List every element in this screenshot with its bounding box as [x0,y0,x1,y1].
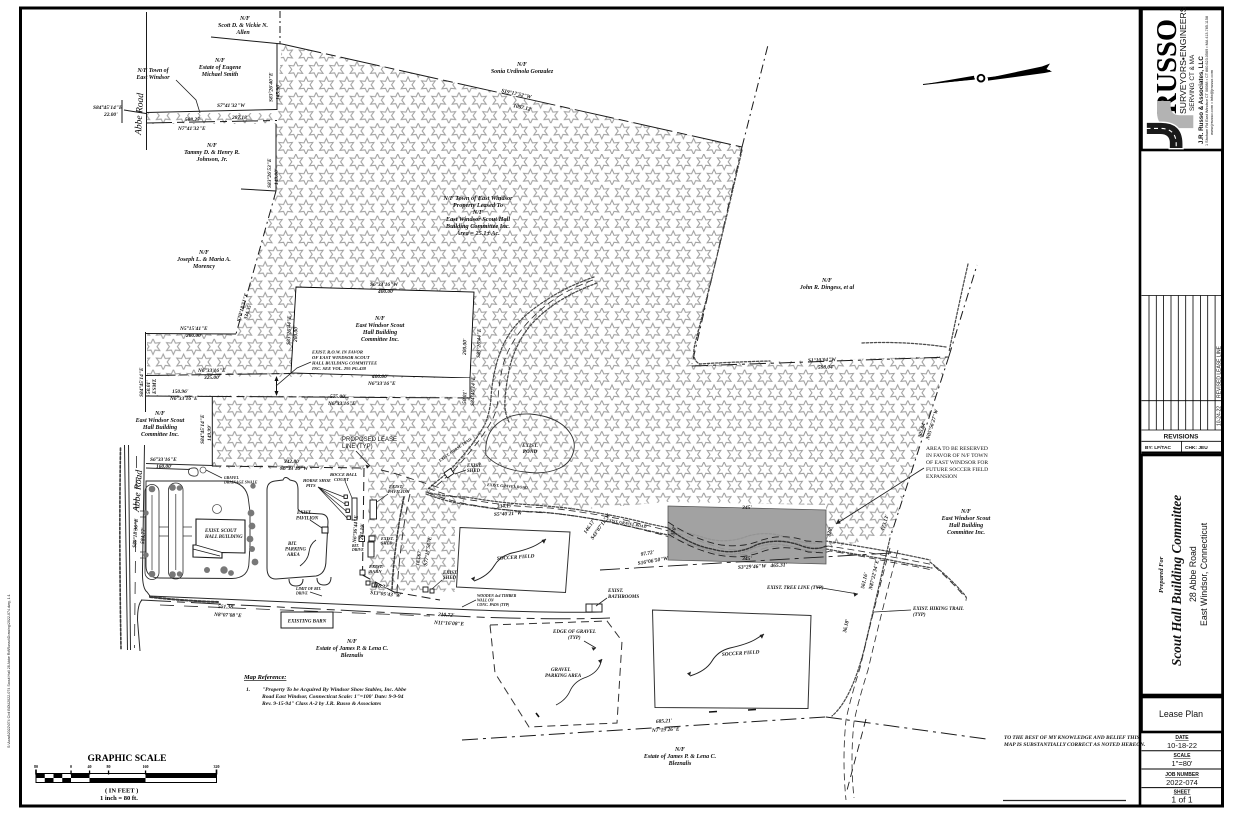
svg-text:PITS: PITS [306,483,316,488]
svg-text:N5°15'41"E: N5°15'41"E [179,325,208,332]
svg-text:S83°26'53"E: S83°26'53"E [266,158,273,188]
svg-text:Hall Building: Hall Building [362,330,397,336]
svg-text:REVISIONS: REVISIONS [1164,434,1200,441]
svg-text:575.00': 575.00' [330,394,347,400]
svg-text:Hall Building: Hall Building [142,425,177,431]
svg-text:DRAINAGE SWALE: DRAINAGE SWALE [223,481,258,485]
svg-text:East Windsor, Connecticut: East Windsor, Connecticut [1199,522,1209,626]
svg-text:Michael Smith: Michael Smith [201,72,239,78]
svg-text:145.96': 145.96' [276,83,282,100]
svg-text:1.: 1. [246,687,250,693]
svg-text:400.00': 400.00' [371,374,389,380]
svg-text:Lease Plan: Lease Plan [1159,709,1203,719]
svg-text:S6°33'16"W: S6°33'16"W [280,465,309,472]
svg-text:SURVEYORS•ENGINEERS: SURVEYORS•ENGINEERS [1178,6,1188,114]
svg-text:551.38': 551.38' [218,604,235,611]
svg-text:FUTURE SOCCER FIELD: FUTURE SOCCER FIELD [926,467,988,473]
svg-text:COURT: COURT [334,477,349,482]
svg-text:EXIST. R.O.W. IN FAVOR: EXIST. R.O.W. IN FAVOR [311,350,363,355]
svg-text:LINE (TYP): LINE (TYP) [342,444,373,450]
svg-text:10-24-22: 10-24-22 [1217,406,1223,426]
svg-text:EXIST. TREE LINE (TYP): EXIST. TREE LINE (TYP) [766,586,824,591]
svg-text:287.18': 287.18' [231,115,249,121]
svg-text:Scott D. & Vickie N.: Scott D. & Vickie N. [218,23,268,29]
svg-text:www.jrrusso.com • info@jrrusso: www.jrrusso.com • info@jrrusso.com [1209,69,1214,135]
svg-text:EXISTING BARN: EXISTING BARN [287,620,327,625]
svg-text:Rev. 9-15-94" Class A-2 by J.R: Rev. 9-15-94" Class A-2 by J.R. Russo & … [261,701,381,707]
svg-text:210.72': 210.72' [437,612,455,619]
svg-text:AREA: AREA [286,553,300,558]
svg-text:N6°33'16"E: N6°33'16"E [169,395,198,402]
svg-text:Sonia Urdinola Gonzalez: Sonia Urdinola Gonzalez [491,69,554,75]
svg-text:N/F: N/F [374,316,385,322]
svg-text:2022-074: 2022-074 [1166,778,1198,787]
svg-text:Committee Inc.: Committee Inc. [141,432,179,438]
svg-text:BY: LF/TAC: BY: LF/TAC [1145,445,1171,451]
svg-text:10-18-22: 10-18-22 [1167,741,1197,750]
svg-text:160: 160 [143,764,149,769]
svg-text:22.00': 22.00' [103,112,118,118]
svg-text:Hall Building: Hall Building [948,523,983,529]
svg-text:0: 0 [70,764,72,769]
svg-text:East Windsor Scout Hall: East Windsor Scout Hall [445,216,510,223]
svg-text:Committee Inc.: Committee Inc. [947,530,985,536]
svg-text:EDGE OF GRAVEL: EDGE OF GRAVEL [552,630,596,635]
svg-text:OF EAST WINDSOR SCOUT: OF EAST WINDSOR SCOUT [312,355,370,360]
svg-text:N/F: N/F [821,278,832,284]
svg-text:Road East Windsor, Connecticut: Road East Windsor, Connecticut Scale: 1"… [261,694,404,700]
svg-text:INC. SEE VOL. 295 PG.438: INC. SEE VOL. 295 PG.438 [311,366,367,371]
svg-text:200.00': 200.00' [185,333,203,339]
svg-text:Map Reference:: Map Reference: [243,674,286,681]
svg-text:EXIST. HIKING TRAIL: EXIST. HIKING TRAIL [912,607,964,612]
svg-text:598.04': 598.04' [818,364,835,371]
svg-text:320: 320 [214,764,220,769]
svg-text:(TYP): (TYP) [913,613,926,618]
svg-text:Prepared For: Prepared For [1158,556,1165,593]
svg-text:Estate of James P. & Lena C.: Estate of James P. & Lena C. [643,754,717,760]
svg-text:S84°45'14"E: S84°45'14"E [199,414,206,444]
svg-text:SHED: SHED [443,576,457,581]
svg-text:N/F: N/F [154,411,165,417]
svg-text:N/F: N/F [198,250,209,256]
svg-text:HALL BUILDING COMMITTEE: HALL BUILDING COMMITTEE [311,361,377,366]
svg-text:CONC. PADS (TYP): CONC. PADS (TYP) [477,603,510,607]
svg-text:Estate of Eugene: Estate of Eugene [198,65,242,71]
svg-text:WOODEN 4x4 TIMBER: WOODEN 4x4 TIMBER [477,594,517,598]
svg-text:N/F Town of East Windsor: N/F Town of East Windsor [442,195,513,202]
svg-text:GRAPHIC SCALE: GRAPHIC SCALE [88,754,167,764]
svg-text:685.21': 685.21' [656,718,673,725]
svg-text:Building Committee Inc.: Building Committee Inc. [445,223,511,230]
svg-text:S84°45'14"E: S84°45'14"E [138,367,145,397]
svg-text:John R. Dingess, et al: John R. Dingess, et al [799,285,855,291]
svg-text:BIT.: BIT. [287,542,297,547]
svg-text:N/F Town of: N/F Town of [136,68,169,74]
svg-text:200.00': 200.00' [293,325,300,343]
svg-text:PARKING: PARKING [285,548,307,553]
svg-text:Allen: Allen [235,30,250,36]
svg-text:IN FAVOR OF N/F TOWN: IN FAVOR OF N/F TOWN [926,453,988,459]
svg-text:N/F: N/F [346,639,357,645]
svg-text:160.00': 160.00' [156,464,173,470]
svg-text:Bleznalis: Bleznalis [340,653,364,659]
svg-text:325.00': 325.00' [203,375,221,381]
svg-text:N6°33'16"E: N6°33'16"E [327,400,356,407]
svg-text:PARKING AREA: PARKING AREA [545,674,582,679]
svg-text:Scout Hall Building Committee: Scout Hall Building Committee [1169,495,1184,666]
svg-text:588.27': 588.27' [185,117,202,123]
svg-text:N/F: N/F [206,143,217,149]
svg-text:PROPOSED LEASE: PROPOSED LEASE [342,437,397,443]
svg-text:S83°26'40"E: S83°26'40"E [268,72,275,102]
svg-text:400.00': 400.00' [377,289,395,295]
svg-text:S7°41'32"W: S7°41'32"W [217,102,246,109]
svg-text:East Windsor Scout: East Windsor Scout [941,516,991,522]
svg-text:EXIST.: EXIST. [296,511,312,516]
svg-text:N/F: N/F [472,209,484,216]
svg-text:150.96': 150.96' [172,389,189,395]
svg-text:ESMT.: ESMT. [152,378,158,395]
svg-text:1 inch = 80 ft.: 1 inch = 80 ft. [100,795,138,802]
svg-text:Morency: Morency [192,264,215,270]
svg-text:N8°07'08"E: N8°07'08"E [213,611,242,619]
svg-text:PAVILION: PAVILION [296,517,319,522]
svg-text:N/F: N/F [516,62,527,68]
svg-text:50.01': 50.01' [462,390,468,404]
svg-text:GRAVEL: GRAVEL [224,476,240,480]
svg-text:EXIST. SCOUT: EXIST. SCOUT [204,529,238,534]
svg-text:S83°26'44"E: S83°26'44"E [285,315,293,345]
svg-text:WALL ON: WALL ON [477,599,494,603]
svg-text:40: 40 [88,764,92,769]
svg-text:DRIVE: DRIVE [295,592,308,596]
svg-text:345': 345' [741,505,752,511]
svg-text:MAP IS SUBSTANTIALLY CORRECT A: MAP IS SUBSTANTIALLY CORRECT AS NOTED HE… [1003,742,1145,748]
svg-text:J.R. Russo & Associates, LLC: J.R. Russo & Associates, LLC [1198,56,1205,144]
svg-text:DRIVE: DRIVE [351,548,364,552]
svg-text:N6°33'16"E: N6°33'16"E [367,380,396,387]
svg-text:1 of 1: 1 of 1 [1171,795,1193,805]
svg-text:N/F: N/F [960,509,971,515]
svg-text:S1°10'04"W: S1°10'04"W [808,356,837,364]
svg-text:(TYP): (TYP) [568,636,581,641]
svg-text:342.80': 342.80' [283,459,301,465]
svg-text:POND: POND [523,449,538,455]
svg-text:LIMIT OF BIT.: LIMIT OF BIT. [295,587,321,591]
svg-text:261.19': 261.19' [359,523,366,541]
svg-text:( IN FEET ): ( IN FEET ) [105,788,138,795]
svg-text:EXPANSION: EXPANSION [926,474,957,480]
svg-text:28 Abbe Road: 28 Abbe Road [1188,546,1198,602]
svg-text:"Property To be Acquired By Wi: "Property To be Acquired By Windsor Show… [262,687,407,693]
svg-text:200.00': 200.00' [462,338,469,356]
svg-text:BATHROOMS: BATHROOMS [607,595,639,600]
svg-text:CHK: JEU: CHK: JEU [1185,445,1208,451]
svg-text:East Windsor Scout: East Windsor Scout [355,323,405,329]
svg-text:EXIST.: EXIST. [607,589,623,594]
svg-text:AREA TO BE RESERVED: AREA TO BE RESERVED [926,446,988,452]
svg-text:S6°33'16"E: S6°33'16"E [150,456,177,463]
svg-text:SHED: SHED [381,541,392,546]
svg-text:East Windsor: East Windsor [135,75,170,81]
svg-text:REVISED LEASE LINE: REVISED LEASE LINE [1217,345,1223,398]
svg-text:334.17': 334.17' [496,503,514,510]
svg-text:Bleznalis: Bleznalis [668,761,692,767]
svg-text:S84°45'14"E: S84°45'14"E [469,376,477,406]
svg-text:Tammy D. & Henry R.: Tammy D. & Henry R. [184,150,240,156]
svg-text:S6°33'16"W: S6°33'16"W [370,281,399,288]
svg-text:Property Leased To: Property Leased To [453,202,503,209]
svg-text:SHED: SHED [467,469,481,474]
svg-text:East Windsor Scout: East Windsor Scout [135,418,185,424]
svg-text:149.00': 149.00' [274,168,280,185]
svg-text:N/F: N/F [674,747,685,753]
svg-text:N7°41'32"E: N7°41'32"E [177,125,206,132]
svg-text:Committee Inc.: Committee Inc. [361,337,399,343]
svg-text:TO THE BEST OF MY KNOWLEDGE AN: TO THE BEST OF MY KNOWLEDGE AND BELIEF T… [1004,735,1140,741]
svg-text:Johnson, Jr.: Johnson, Jr. [196,157,228,163]
svg-text:1"=80': 1"=80' [1172,759,1194,768]
svg-text:Estate of James P. & Lena C.: Estate of James P. & Lena C. [315,646,389,652]
svg-text:PAVILION: PAVILION [388,489,410,494]
svg-text:N/F: N/F [214,58,225,64]
svg-text:149.99': 149.99' [207,424,213,441]
svg-text:SERVING CT & MA: SERVING CT & MA [1189,54,1196,111]
svg-text:80: 80 [107,764,111,769]
svg-text:Area = 25.1± Ac.: Area = 25.1± Ac. [455,230,500,237]
svg-text:Joseph L. & Maria A.: Joseph L. & Maria A. [176,257,231,263]
svg-text:80: 80 [34,764,38,769]
svg-text:S84°45'14"E: S84°45'14"E [93,104,123,111]
svg-text:N6°33'16"E: N6°33'16"E [197,367,226,374]
svg-text:BARN: BARN [368,569,382,574]
svg-text:584.77': 584.77' [140,527,147,544]
svg-text:OF EAST WINDSOR FOR: OF EAST WINDSOR FOR [926,460,988,466]
svg-text:GRAVEL: GRAVEL [551,668,571,673]
svg-text:S83°26'44"E: S83°26'44"E [475,328,483,358]
svg-text:HALL BUILDING: HALL BUILDING [204,535,243,540]
svg-text:S:\Acad\2022\074 Civil BOU2022: S:\Acad\2022\074 Civil BOU2022-074 Scout… [7,594,11,748]
svg-text:N/F: N/F [239,16,250,22]
